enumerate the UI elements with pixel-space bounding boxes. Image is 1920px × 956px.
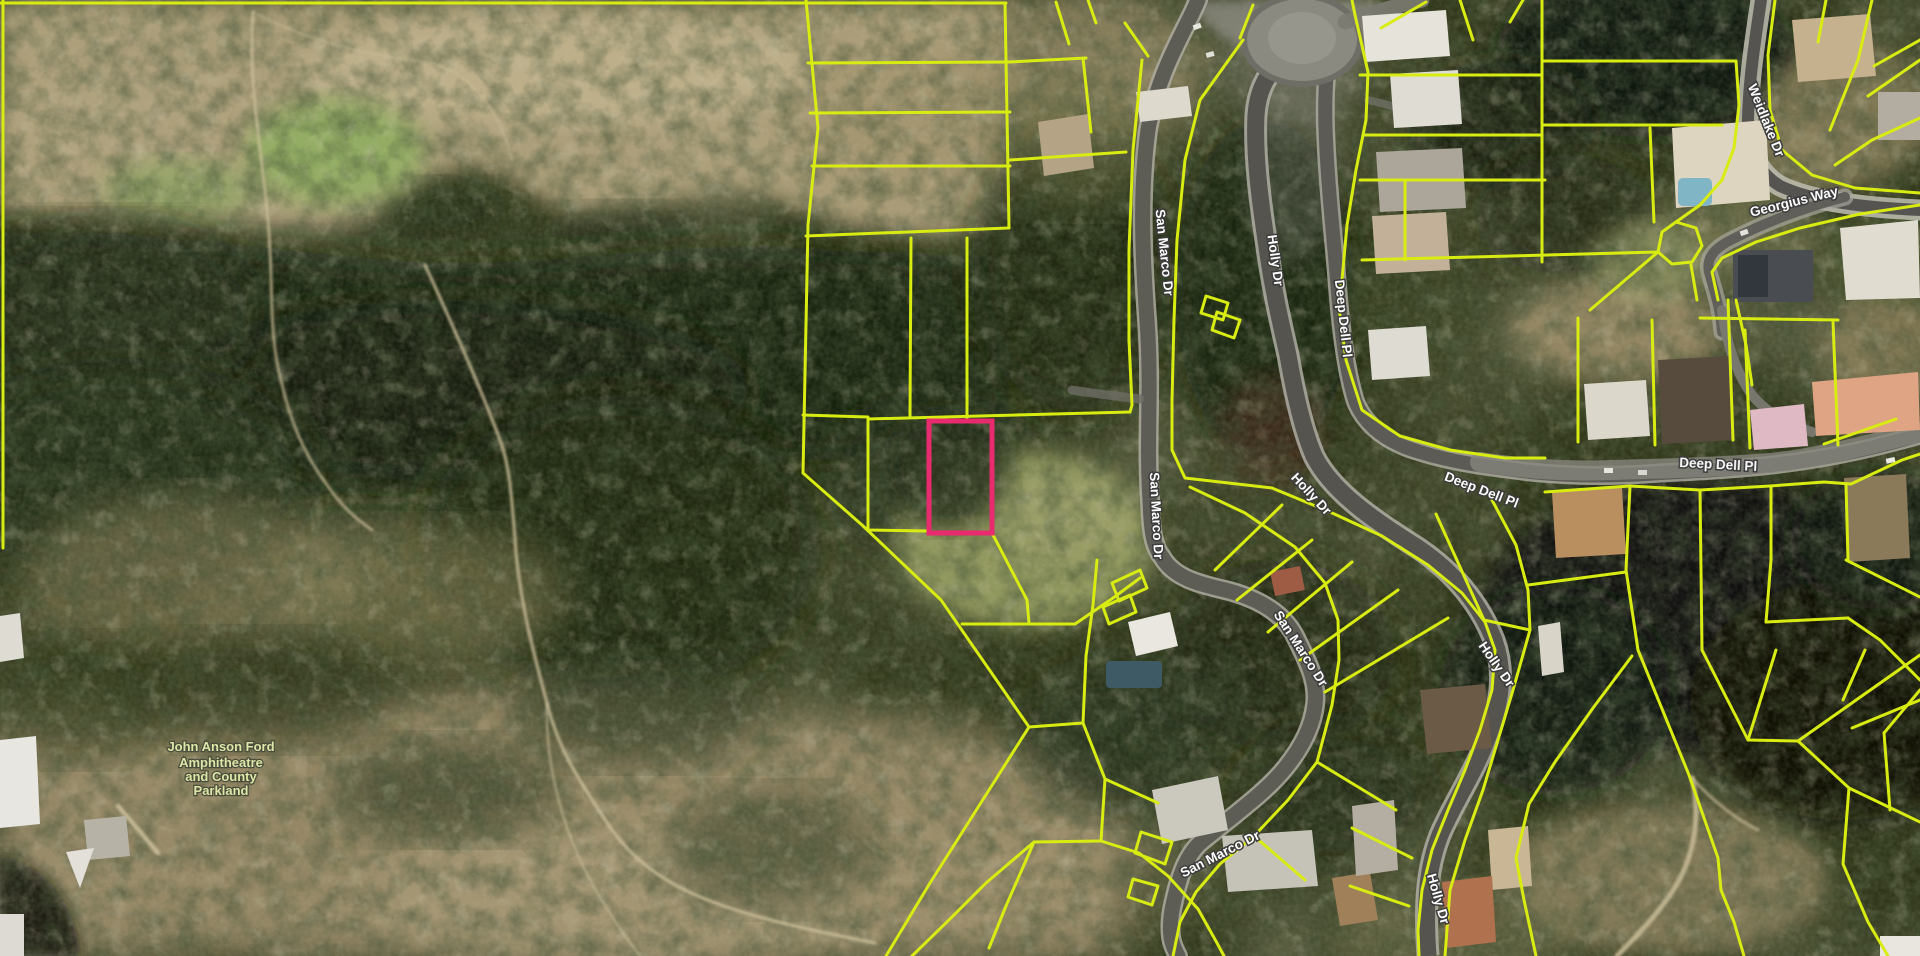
svg-text:Parkland: Parkland — [194, 783, 249, 798]
svg-text:Amphitheatre: Amphitheatre — [179, 755, 263, 770]
svg-text:and County: and County — [185, 769, 257, 784]
svg-text:John Anson Ford: John Anson Ford — [167, 739, 274, 754]
